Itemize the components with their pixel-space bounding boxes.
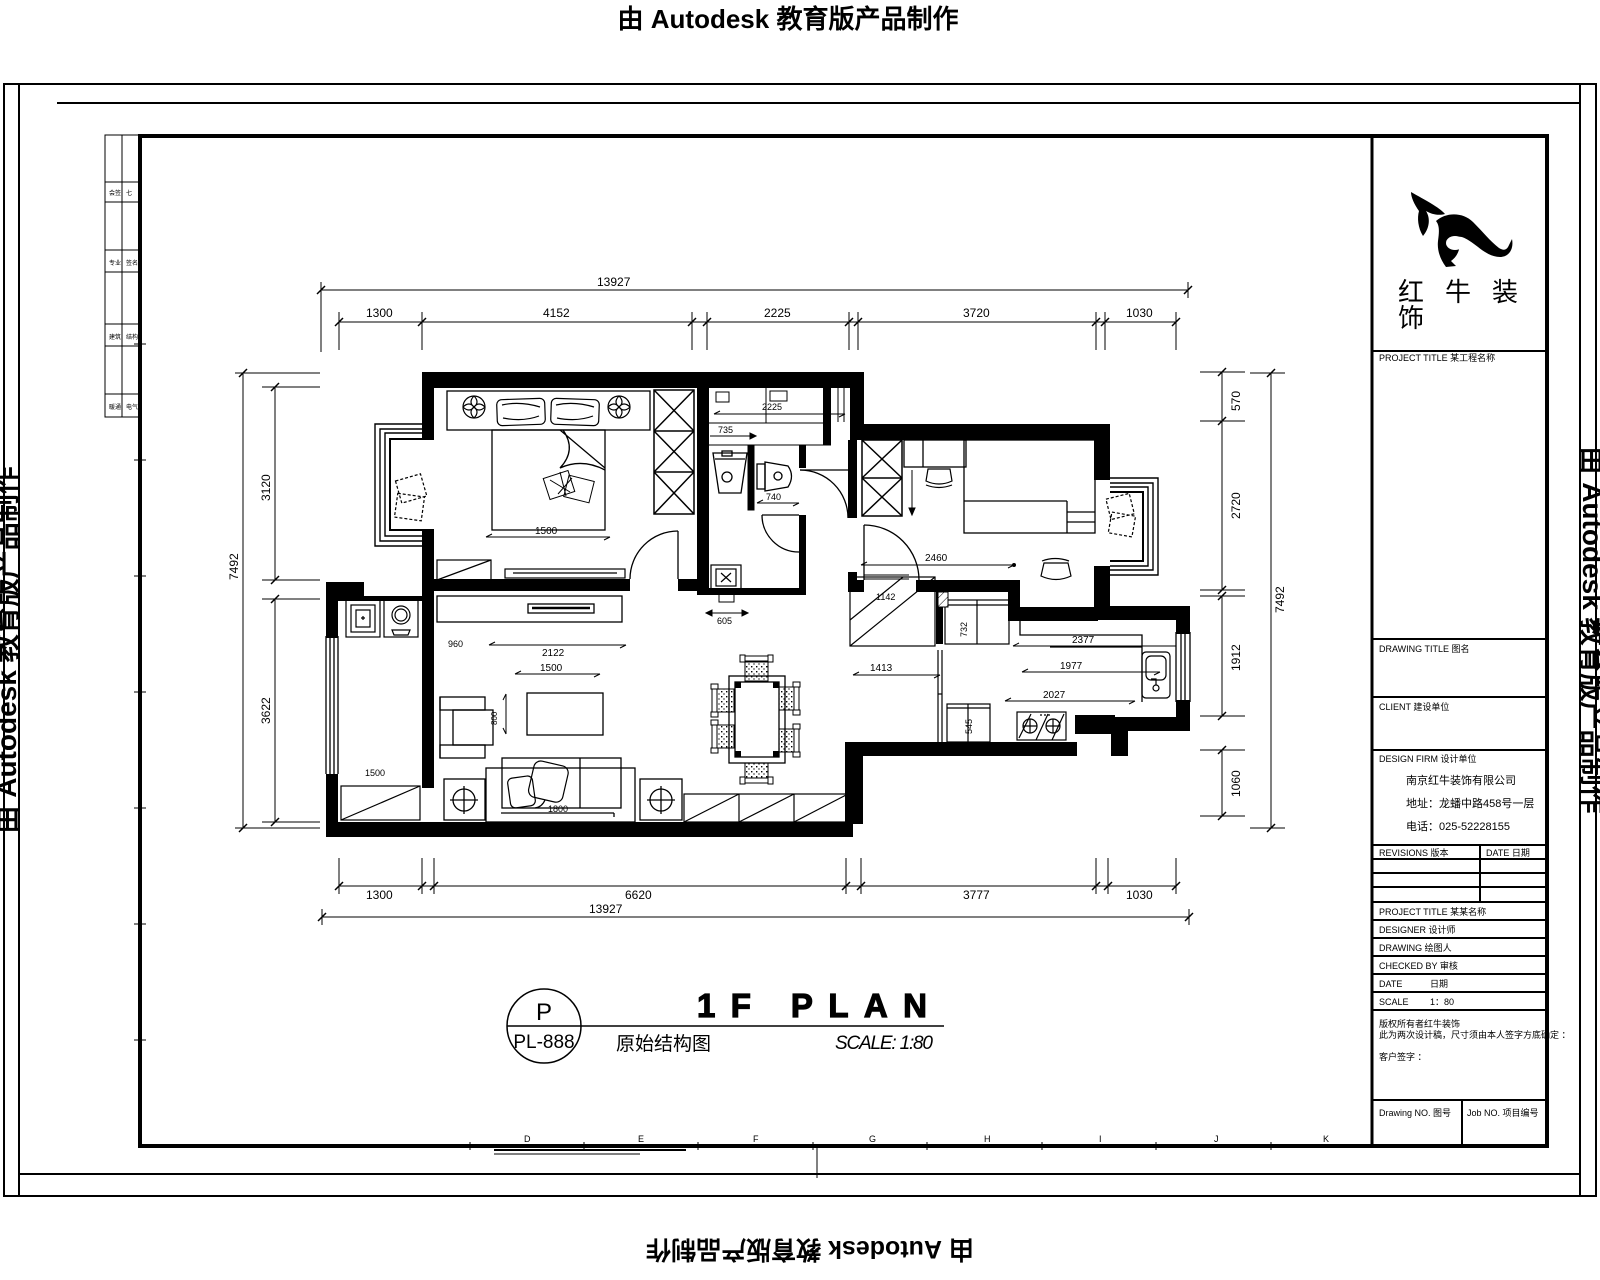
svg-text:2377: 2377 <box>1072 635 1095 646</box>
svg-text:D: D <box>524 1134 531 1144</box>
svg-text:6620: 6620 <box>625 888 652 902</box>
svg-text:1142: 1142 <box>876 592 895 602</box>
svg-text:960: 960 <box>448 639 463 649</box>
svg-text:1300: 1300 <box>366 306 393 320</box>
svg-text:CHECKED BY 审核: CHECKED BY 审核 <box>1379 960 1458 971</box>
svg-text:605: 605 <box>717 616 732 626</box>
svg-text:P: P <box>536 999 552 1026</box>
svg-text:结构: 结构 <box>126 333 138 341</box>
svg-text:2720: 2720 <box>1229 492 1243 519</box>
svg-text:签名: 签名 <box>126 259 138 267</box>
svg-text:由 Autodesk 教育版产品制作: 由 Autodesk 教育版产品制作 <box>618 4 959 34</box>
svg-text:2027: 2027 <box>1043 690 1066 701</box>
svg-text:DRAWING 绘图人: DRAWING 绘图人 <box>1379 942 1452 953</box>
svg-text:专业: 专业 <box>109 259 121 267</box>
svg-text:7492: 7492 <box>227 553 241 580</box>
svg-text:会签: 会签 <box>109 189 121 197</box>
svg-text:由 Autodesk 教育版产品制作: 由 Autodesk 教育版产品制作 <box>646 1235 974 1264</box>
svg-text:7492: 7492 <box>1273 586 1287 613</box>
svg-text:H: H <box>984 1134 991 1144</box>
svg-text:545: 545 <box>964 719 974 734</box>
svg-text:K: K <box>1323 1134 1329 1144</box>
svg-text:此为两次设计稿，尺寸须由本人签字方底确定 ：: 此为两次设计稿，尺寸须由本人签字方底确定 ： <box>1379 1029 1571 1040</box>
svg-text:DATE 日期: DATE 日期 <box>1486 848 1530 858</box>
svg-text:日期: 日期 <box>1430 979 1448 989</box>
svg-text:570: 570 <box>1229 391 1243 411</box>
svg-text:13927: 13927 <box>589 902 623 916</box>
svg-text:1500: 1500 <box>365 768 385 778</box>
svg-text:J: J <box>1214 1134 1219 1144</box>
svg-text:1413: 1413 <box>870 663 893 674</box>
svg-text:13927: 13927 <box>597 275 631 289</box>
svg-text:2122: 2122 <box>542 648 565 659</box>
svg-text:2225: 2225 <box>764 306 791 320</box>
svg-text:1：80: 1：80 <box>1430 997 1454 1007</box>
svg-text:暖通: 暖通 <box>109 403 121 411</box>
svg-text:I: I <box>1099 1134 1102 1144</box>
svg-text:版权所有者红牛装饰: 版权所有者红牛装饰 <box>1379 1018 1460 1029</box>
svg-text:客户签字 ：: 客户签字 ： <box>1379 1051 1427 1062</box>
svg-text:DATE: DATE <box>1379 979 1402 989</box>
svg-text:1030: 1030 <box>1126 888 1153 902</box>
svg-text:南京红牛装饰有限公司: 南京红牛装饰有限公司 <box>1406 773 1516 787</box>
svg-text:PROJECT TITLE 某工程名称: PROJECT TITLE 某工程名称 <box>1379 352 1495 363</box>
svg-text:DESIGNER 设计师: DESIGNER 设计师 <box>1379 924 1456 935</box>
svg-text:1245: 1245 <box>848 472 858 492</box>
svg-text:PL-888: PL-888 <box>513 1032 574 1053</box>
svg-text:电气: 电气 <box>126 403 138 411</box>
svg-text:REVISIONS 版本: REVISIONS 版本 <box>1379 847 1449 858</box>
svg-text:建筑: 建筑 <box>109 333 121 341</box>
svg-text:SCALE: SCALE <box>1379 997 1409 1007</box>
svg-text:735: 735 <box>718 425 733 435</box>
svg-text:1500: 1500 <box>535 526 558 537</box>
svg-text:1030: 1030 <box>1126 306 1153 320</box>
svg-text:Job NO. 项目编号: Job NO. 项目编号 <box>1467 1107 1539 1118</box>
svg-text:饰: 饰 <box>1398 303 1424 333</box>
svg-text:740: 740 <box>766 492 781 502</box>
svg-text:CLIENT 建设单位: CLIENT 建设单位 <box>1379 701 1449 712</box>
svg-text:SCALE: 1:80: SCALE: 1:80 <box>835 1033 933 1054</box>
svg-text:800: 800 <box>490 711 499 725</box>
svg-text:地址：龙蟠中路458号一层: 地址：龙蟠中路458号一层 <box>1406 796 1534 810</box>
svg-text:1977: 1977 <box>1060 661 1083 672</box>
svg-text:732: 732 <box>959 622 969 637</box>
svg-text:DRAWING TITLE 图名: DRAWING TITLE 图名 <box>1379 643 1470 654</box>
svg-text:3720: 3720 <box>963 306 990 320</box>
svg-text:E: E <box>638 1134 644 1144</box>
svg-text:3622: 3622 <box>259 697 273 724</box>
svg-text:3120: 3120 <box>259 474 273 501</box>
svg-text:DESIGN FIRM 设计单位: DESIGN FIRM 设计单位 <box>1379 753 1477 764</box>
svg-text:PROJECT TITLE 某某名称: PROJECT TITLE 某某名称 <box>1379 906 1486 917</box>
svg-text:电话：025-52228155: 电话：025-52228155 <box>1406 820 1510 833</box>
svg-text:原始结构图: 原始结构图 <box>616 1033 711 1055</box>
svg-text:1F PLAN: 1F PLAN <box>697 987 933 1024</box>
svg-text:2225: 2225 <box>762 402 782 412</box>
svg-text:1500: 1500 <box>540 663 563 674</box>
svg-text:Drawing NO. 图号: Drawing NO. 图号 <box>1379 1108 1451 1118</box>
svg-text:3777: 3777 <box>963 888 990 902</box>
svg-text:4152: 4152 <box>543 306 570 320</box>
svg-text:1300: 1300 <box>366 888 393 902</box>
svg-text:1800: 1800 <box>548 804 568 814</box>
svg-text:1060: 1060 <box>1229 770 1243 797</box>
svg-text:七: 七 <box>126 189 132 197</box>
svg-text:2460: 2460 <box>925 553 948 564</box>
svg-text:1912: 1912 <box>1229 644 1243 671</box>
svg-text:G: G <box>869 1134 876 1144</box>
svg-text:F: F <box>753 1134 759 1144</box>
